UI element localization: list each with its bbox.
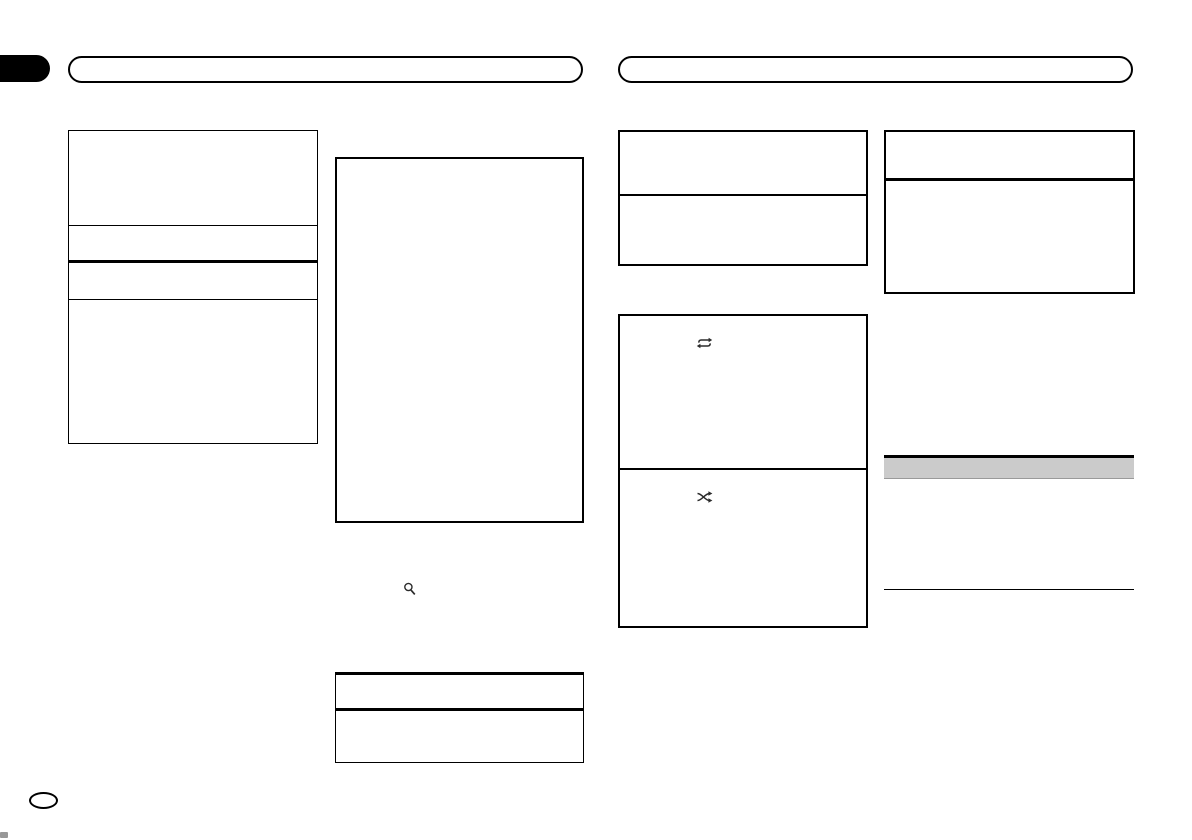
horizontal-rule: [884, 589, 1134, 590]
repeat-icon: [696, 336, 713, 350]
table-row: [69, 263, 317, 300]
shuffle-icon: [696, 490, 713, 504]
right-column-function-table: [618, 314, 868, 628]
left-column-table: [68, 130, 318, 444]
table-row: [69, 226, 317, 263]
search-icon: [403, 581, 417, 598]
middle-column-box: [335, 157, 584, 523]
table-row: [69, 300, 317, 443]
far-right-top-table: [884, 130, 1135, 294]
left-page-title-pill: [68, 56, 583, 83]
manual-page: [0, 0, 1192, 840]
corner-print-mark: [0, 832, 8, 838]
middle-bottom-table: [335, 672, 584, 763]
table-row: [886, 132, 1133, 181]
table-row-shuffle: [620, 470, 866, 626]
page-number-oval: [29, 792, 58, 809]
section-heading-bar: [884, 455, 1134, 479]
table-row-repeat: [620, 316, 866, 470]
section-edge-tab: [0, 55, 50, 82]
right-column-top-table: [618, 130, 868, 266]
right-page-title-pill: [618, 56, 1133, 83]
table-row: [620, 132, 866, 196]
table-row: [336, 711, 583, 762]
table-row: [336, 675, 583, 711]
table-row: [620, 196, 866, 264]
table-row: [69, 131, 317, 226]
table-row: [886, 181, 1133, 292]
